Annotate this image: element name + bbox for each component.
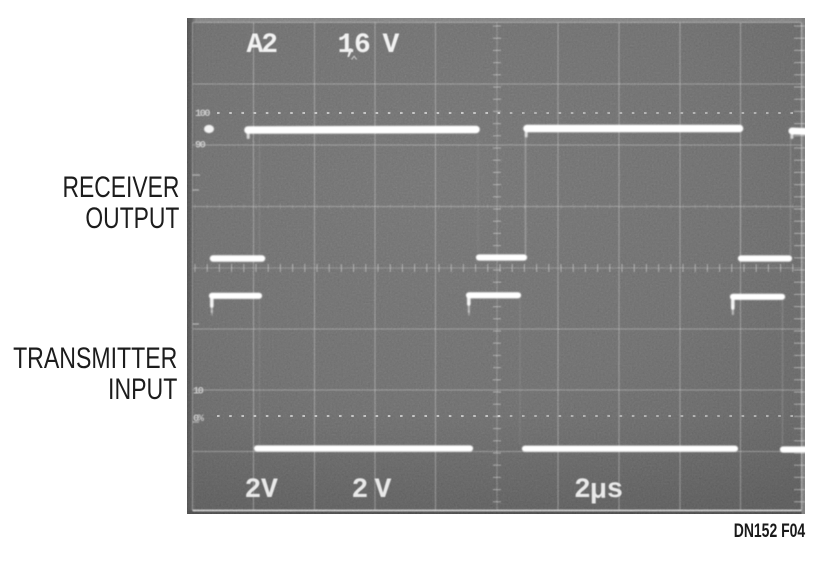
svg-text:2: 2: [352, 475, 369, 506]
svg-text:10: 10: [193, 386, 204, 398]
svg-text:V: V: [261, 475, 278, 506]
svg-text:V: V: [383, 30, 400, 61]
svg-text:A2: A2: [247, 30, 278, 61]
svg-text:100: 100: [195, 108, 210, 120]
svg-text:6: 6: [354, 30, 370, 61]
svg-text:μ: μ: [590, 476, 607, 507]
svg-text:90: 90: [195, 140, 206, 152]
svg-text:1: 1: [338, 30, 354, 61]
svg-text:2: 2: [245, 475, 262, 506]
svg-text:2: 2: [574, 475, 591, 506]
svg-text:s: s: [607, 475, 624, 506]
svg-text:V: V: [375, 475, 392, 506]
